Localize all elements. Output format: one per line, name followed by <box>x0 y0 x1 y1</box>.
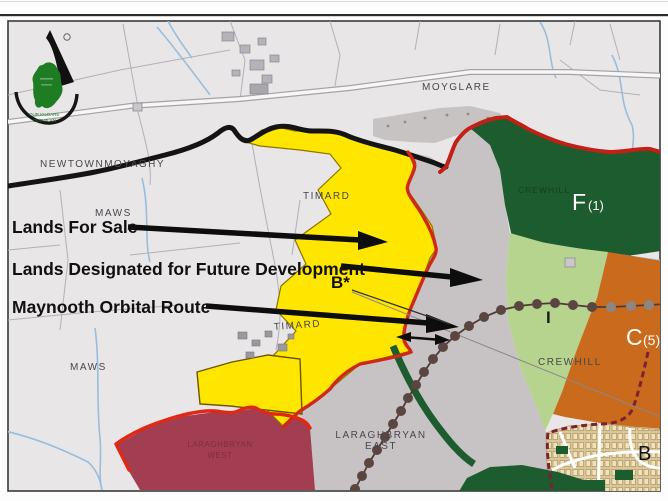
zone-label-b: B <box>638 443 651 465</box>
label-laraghbryan-west-2: WEST <box>207 451 232 460</box>
zone-f-sub: (1) <box>588 198 604 213</box>
annotation-future-development: Lands Designated for Future Development <box>12 259 365 279</box>
annotation-orbital-route: Maynooth Orbital Route <box>12 297 211 317</box>
zone-c-sub: (5) <box>643 332 660 348</box>
logo-tagline-2: OUR PLAN <box>33 118 56 123</box>
annotation-b-star: B* <box>331 273 350 292</box>
logo-text-speck <box>40 78 53 80</box>
roadside-building <box>133 103 142 111</box>
top-border-line <box>0 14 668 16</box>
label-timard-north: TIMARD <box>303 191 350 202</box>
label-laraghbryan-east-2: EAST <box>365 441 397 452</box>
label-crewhill-watermark: CREWHILL <box>518 185 570 195</box>
label-moyglare: MOYGLARE <box>422 82 491 93</box>
zone-f: F <box>572 189 586 215</box>
scanned-planning-map: { "annotations": { "lands_for_sale": "La… <box>0 0 668 501</box>
logo-text-speck <box>41 84 52 86</box>
logo-tagline-1: OUR KILDARE <box>29 112 60 117</box>
zone-label-i: I <box>546 308 551 327</box>
label-laraghbryan-east-1: LARAGHBRYAN <box>335 430 426 441</box>
map-canvas: OUR KILDARE OUR PLAN NEWTOWNMOYAGHY MOYG… <box>0 0 668 501</box>
label-newtownmoyaghy: NEWTOWNMOYAGHY <box>40 159 165 170</box>
building-in-open-space <box>565 258 575 267</box>
annotation-lands-for-sale: Lands For Sale <box>12 217 138 237</box>
zone-c: C <box>626 324 643 350</box>
scan-edge-line <box>0 1 668 2</box>
label-crewhill: CREWHILL <box>538 357 602 368</box>
label-laraghbryan-west-1: LARAGHBRYAN <box>187 440 252 449</box>
label-maws-south: MAWS <box>70 362 107 373</box>
